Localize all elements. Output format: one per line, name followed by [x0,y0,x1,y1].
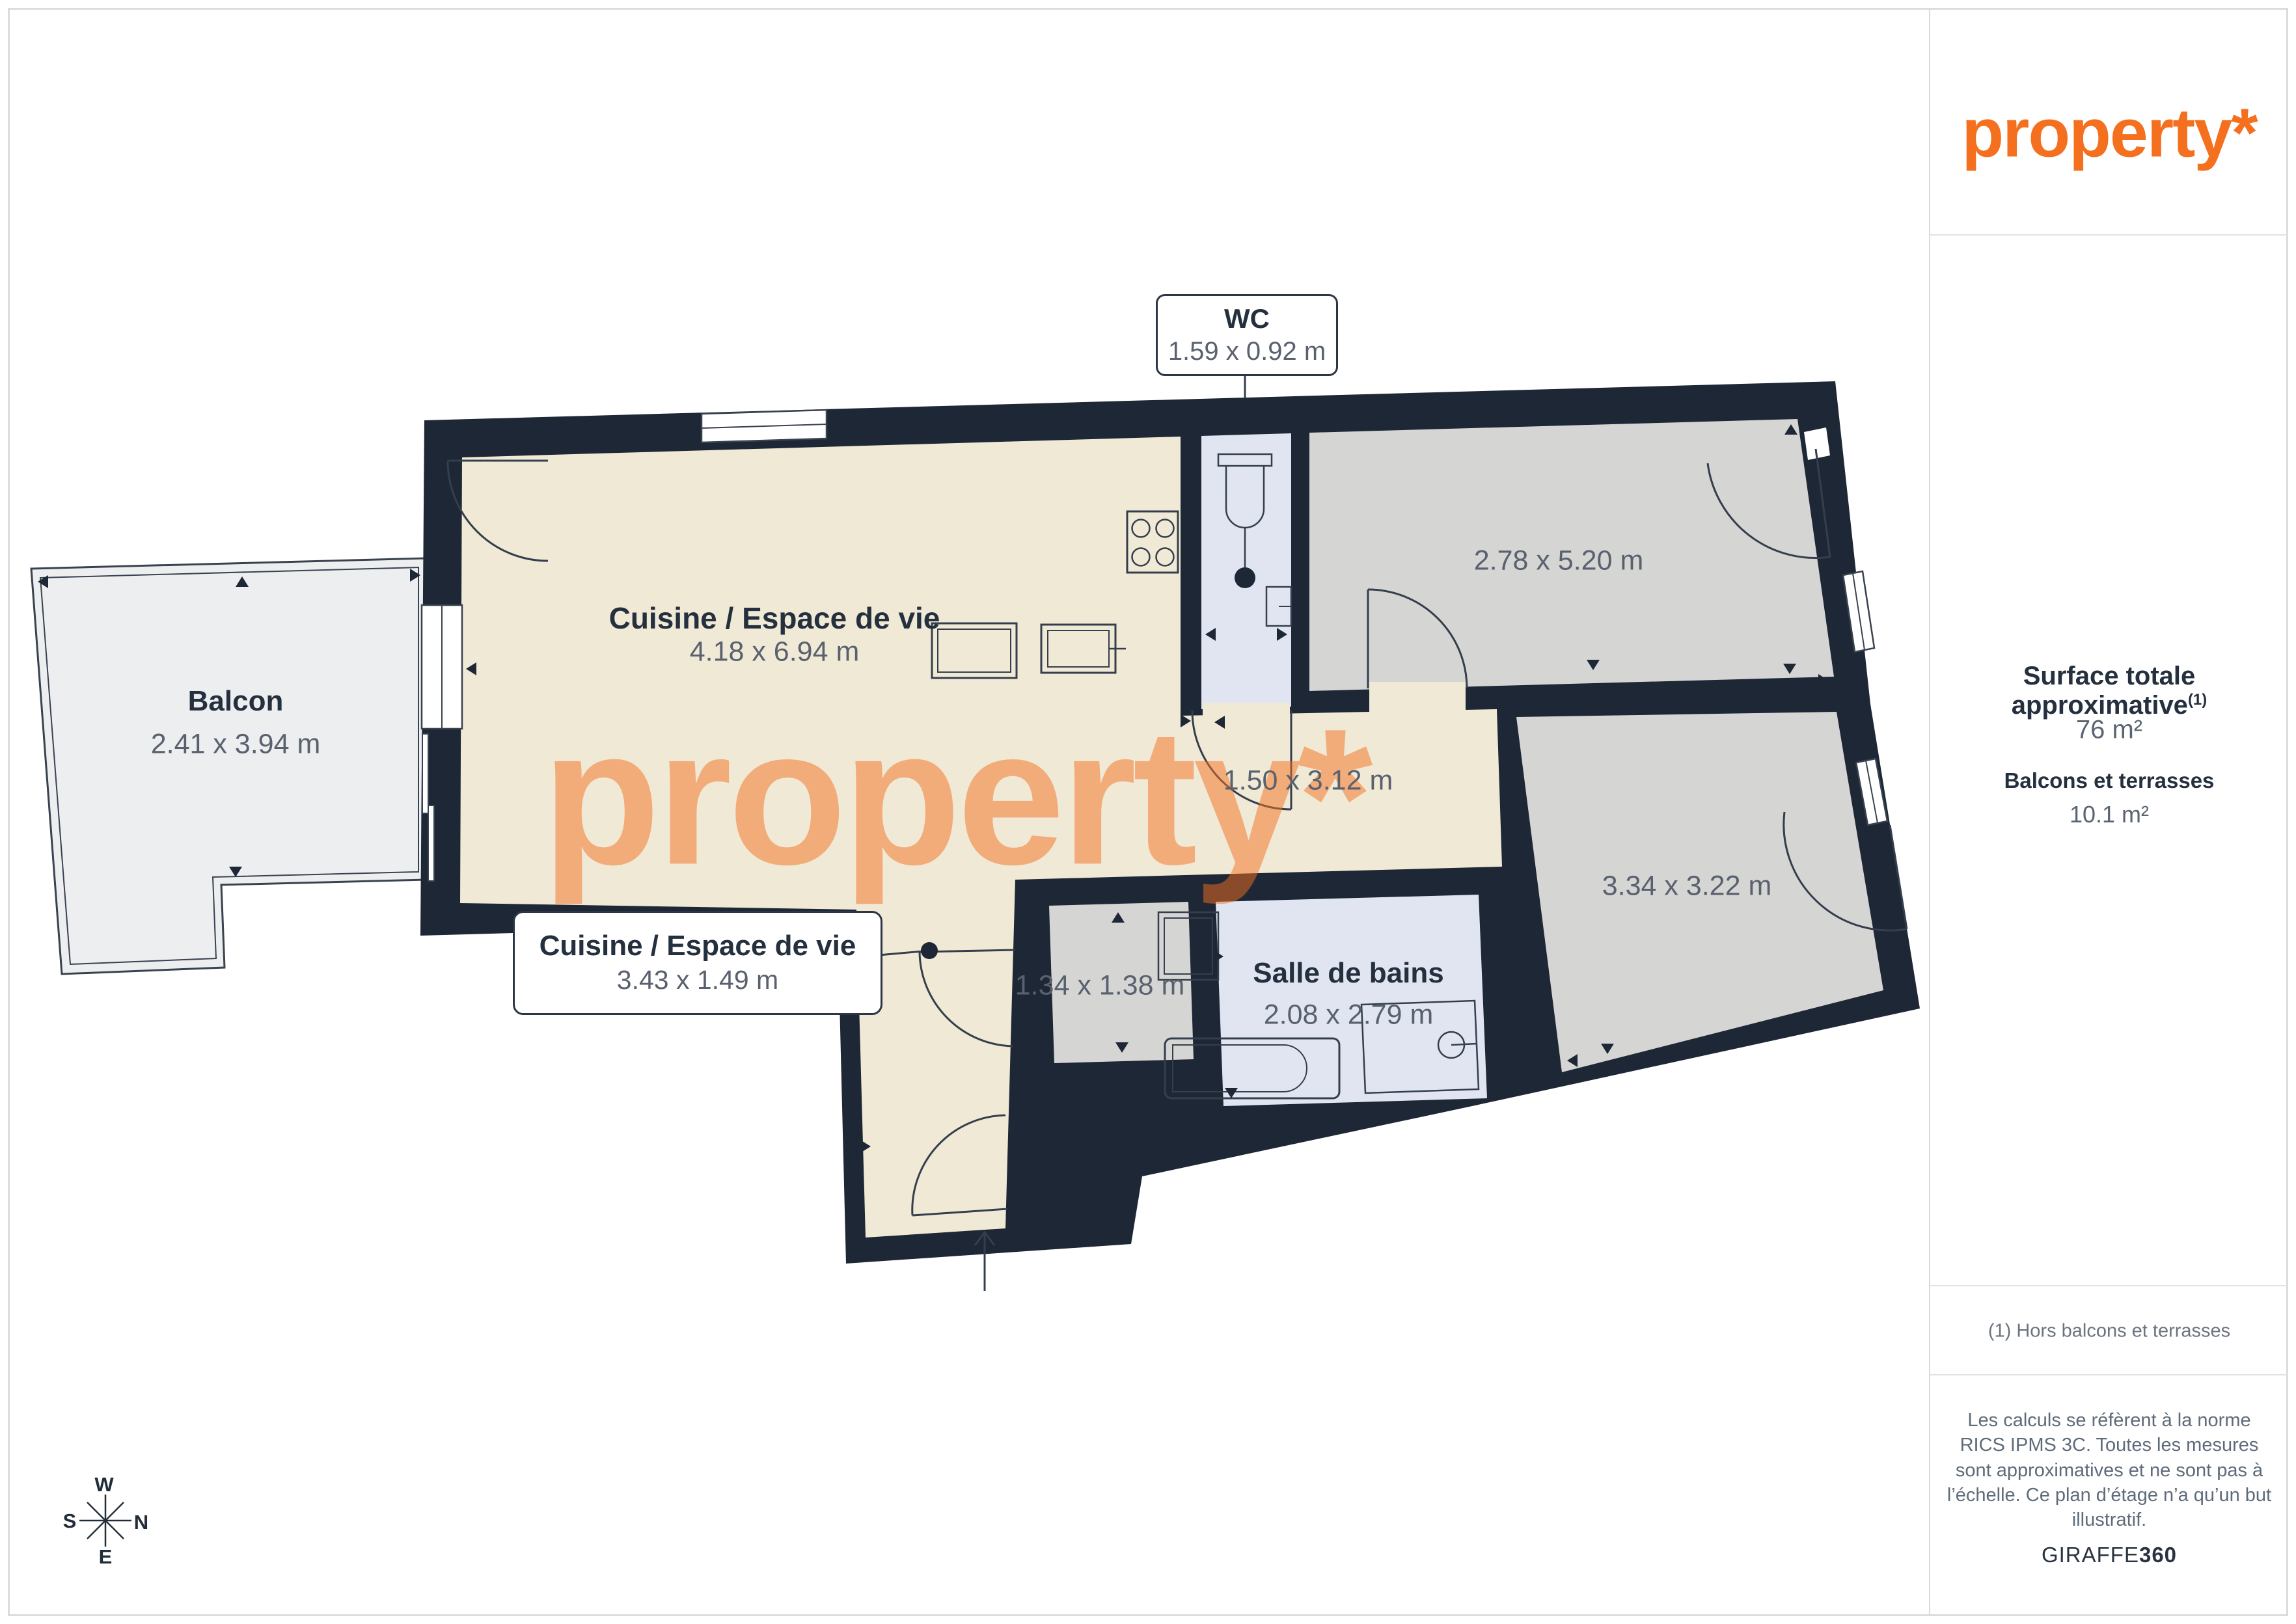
living-left-window [422,605,462,729]
kitchen-callout-title: Cuisine / Espace de vie [540,929,856,964]
giraffe360-regular: GIRAFFE [2042,1543,2139,1567]
kitchen-callout: Cuisine / Espace de vie 3.43 x 1.49 m [513,911,882,1015]
property-logo: property* [1930,94,2288,173]
sidebar-divider-1 [1930,234,2288,236]
surface-footnote-marker: (1) [2188,691,2207,709]
disclaimer-text: Les calculs se réfèrent à la norme RICS … [1947,1408,2272,1532]
wc-callout-title: WC [1224,303,1270,335]
wc-callout-dims: 1.59 x 0.92 m [1168,335,1326,368]
giraffe360-brand: GIRAFFE360 [1930,1543,2288,1567]
bathroom-dims: 2.08 x 2.79 m [1264,999,1434,1031]
compass-east: E [99,1545,113,1569]
watermark: property* [542,685,1369,908]
balcony-label: Balcon [188,685,284,718]
balconies-title: Balcons et terrasses [1930,768,2288,793]
compass-rose: W S N E [39,1444,176,1588]
surface-title: Surface totale approximative(1) [1930,662,2288,720]
balcony-outline [31,558,426,974]
kitchen-callout-dims: 3.43 x 1.49 m [617,964,778,997]
surface-title-text: Surface totale approximative [2012,662,2196,720]
bathroom-label: Salle de bains [1253,957,1443,990]
footnote-text: (1) Hors balcons et terrasses [1930,1321,2288,1342]
bedroom-right-dims: 3.34 x 3.22 m [1602,871,1772,902]
kitchen-leader-dot [921,942,938,959]
compass-north: N [134,1511,148,1534]
balconies-value: 10.1 m² [1930,801,2288,828]
sidebar-divider-2 [1930,1285,2288,1286]
living-room-dims: 4.18 x 6.94 m [690,636,860,668]
hallway-dims: 1.50 x 3.12 m [1223,765,1393,797]
bedroom-top-door-opening [1369,682,1466,712]
bedroom-top-dims: 2.78 x 5.20 m [1474,545,1644,577]
surface-value: 76 m² [1930,716,2288,745]
giraffe360-bold: 360 [2139,1543,2177,1567]
wc-callout: WC 1.59 x 0.92 m [1156,294,1338,376]
balcony-dims: 2.41 x 3.94 m [151,729,321,761]
info-sidebar: property* Surface totale approximative(1… [1929,9,2288,1615]
living-room-label: Cuisine / Espace de vie [609,601,940,636]
closet-dims: 1.34 x 1.38 m [1015,970,1185,1002]
living-top-window [702,410,827,442]
compass-west: W [94,1473,113,1496]
entrance-arrow-icon [975,1232,994,1291]
sidebar-divider-3 [1930,1374,2288,1375]
floorplan-page: property* Balcon 2.41 x 3.94 m Cuisine /… [0,0,2296,1624]
compass-south: S [63,1509,77,1533]
